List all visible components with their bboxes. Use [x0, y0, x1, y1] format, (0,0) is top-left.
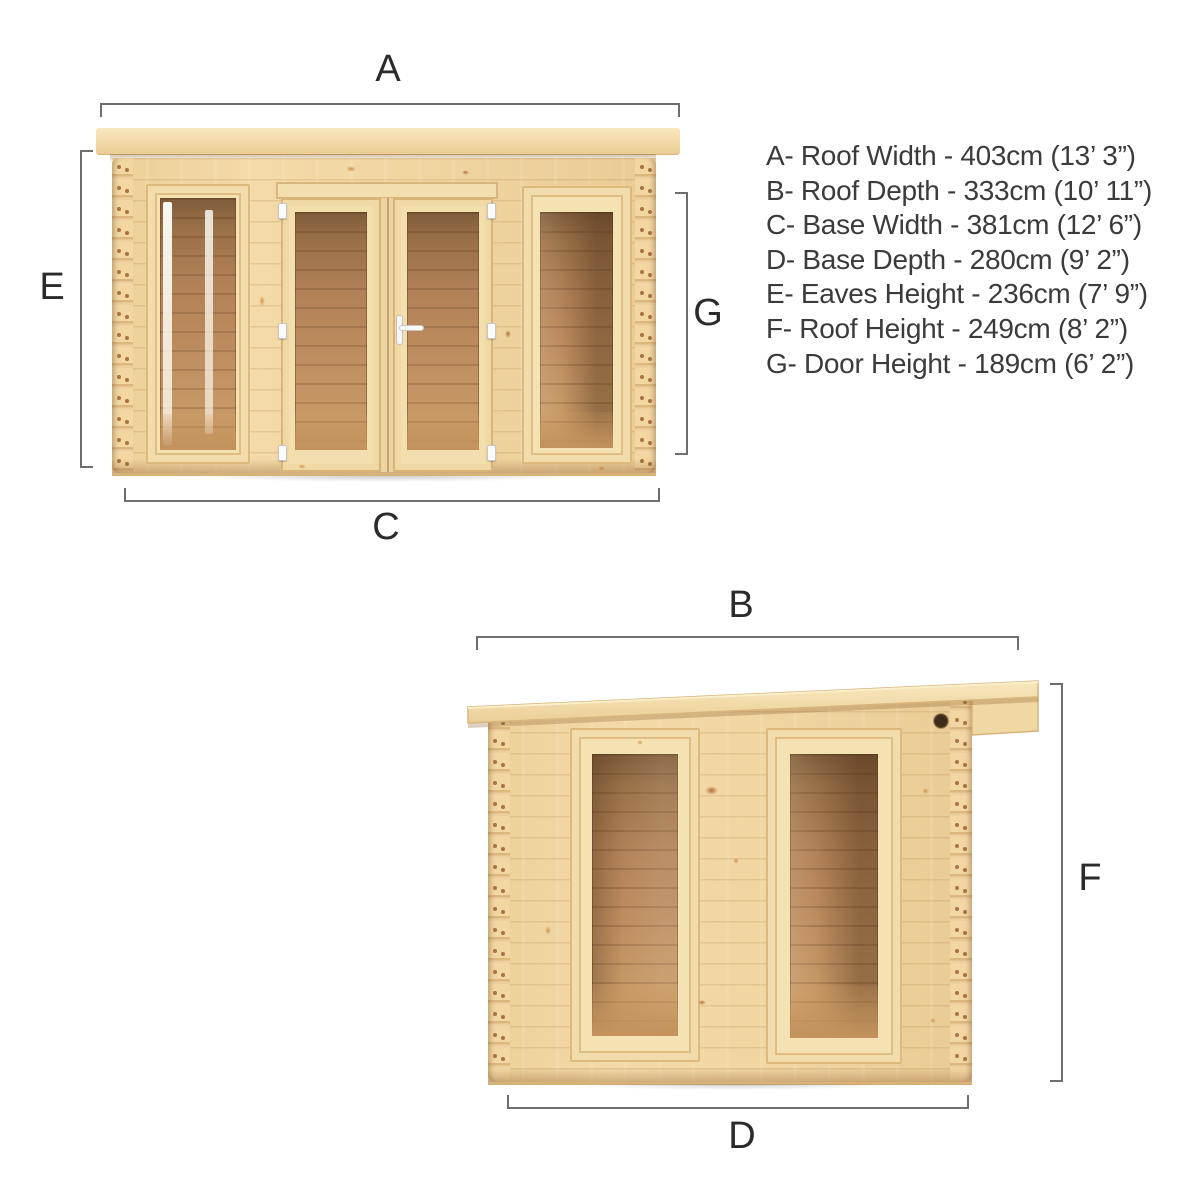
wood-knot — [705, 786, 718, 795]
door-hinge-icon — [487, 445, 496, 461]
dimension-label-a: A — [366, 50, 410, 88]
interior-reflection — [163, 202, 172, 446]
corner-log-ends-right — [950, 690, 972, 1082]
wood-knot — [637, 740, 643, 745]
dimension-label-b: B — [719, 586, 763, 624]
dimension-bracket-base-depth — [507, 1095, 969, 1109]
door-left-glass — [295, 212, 367, 450]
front-ground-shadow — [130, 476, 640, 484]
side-ground-shadow — [515, 1084, 955, 1092]
spec-line-base-depth: D- Base Depth - 280cm (9’ 2”) — [766, 243, 1200, 278]
side-base-strip — [488, 1068, 972, 1082]
door-header-board — [276, 182, 498, 199]
dimension-bracket-roof-width — [100, 103, 680, 117]
door-hinge-icon — [487, 323, 496, 339]
door-right-glass — [407, 212, 479, 450]
interior-floor — [295, 414, 367, 450]
spec-line-roof-height: F- Roof Height - 249cm (8’ 2”) — [766, 312, 1200, 347]
door-handle-icon — [399, 325, 424, 331]
door-hinge-icon — [278, 323, 287, 339]
spec-line-door-height: G- Door Height - 189cm (6’ 2”) — [766, 347, 1200, 382]
corner-log-ends-right — [635, 158, 656, 473]
corner-log-ends-left — [112, 158, 133, 473]
dimension-bracket-eaves-height — [80, 150, 93, 468]
front-left-window-glass — [160, 198, 236, 450]
front-roof — [96, 128, 680, 154]
interior-floor — [790, 986, 878, 1038]
wood-knot — [930, 1018, 936, 1023]
wood-knot — [922, 788, 929, 794]
wood-knot — [505, 330, 511, 338]
door-hinge-icon — [278, 445, 287, 461]
dimension-label-e: E — [30, 268, 74, 306]
dimension-bracket-roof-depth — [476, 636, 1019, 650]
spec-line-base-width: C- Base Width - 381cm (12’ 6”) — [766, 208, 1200, 243]
log-dowel-dots — [640, 165, 644, 169]
spec-line-roof-width: A- Roof Width - 403cm (13’ 3”) — [766, 139, 1200, 174]
dimension-bracket-roof-height — [1050, 683, 1063, 1082]
front-right-window-glass — [540, 212, 613, 448]
dimension-label-d: D — [720, 1117, 764, 1155]
dimension-bracket-base-width — [124, 488, 660, 502]
door-center-jamb — [381, 198, 393, 472]
spec-line-eaves-height: E- Eaves Height - 236cm (7’ 9”) — [766, 277, 1200, 312]
vent-hole-icon — [934, 714, 948, 728]
interior-floor — [592, 984, 678, 1036]
wood-knot — [598, 466, 605, 471]
interior-reflection — [205, 210, 213, 434]
dimension-label-f: F — [1068, 859, 1112, 897]
dimension-label-c: C — [364, 508, 408, 546]
interior-floor — [407, 414, 479, 450]
interior-floor — [540, 412, 613, 448]
wood-knot — [545, 926, 551, 935]
spec-line-roof-depth: B- Roof Depth - 333cm (10’ 11”) — [766, 174, 1200, 209]
wood-knot — [462, 170, 469, 175]
wood-knot — [698, 1000, 706, 1005]
corner-log-ends-left — [488, 690, 510, 1082]
interior-floor — [160, 414, 236, 450]
product-dimension-diagram: A — [0, 0, 1200, 1200]
log-dowel-dots — [117, 165, 121, 169]
wood-knot — [298, 464, 306, 469]
door-hinge-icon — [487, 203, 496, 219]
door-hinge-icon — [278, 203, 287, 219]
wood-knot — [346, 166, 356, 172]
side-roof — [460, 668, 1045, 748]
dimension-spec-list: A- Roof Width - 403cm (13’ 3”) B- Roof D… — [766, 139, 1200, 381]
wood-knot — [733, 858, 739, 864]
side-right-window-glass — [790, 754, 878, 1038]
side-left-window-glass — [592, 754, 678, 1036]
wood-knot — [259, 296, 265, 306]
dimension-label-g: G — [686, 294, 730, 332]
